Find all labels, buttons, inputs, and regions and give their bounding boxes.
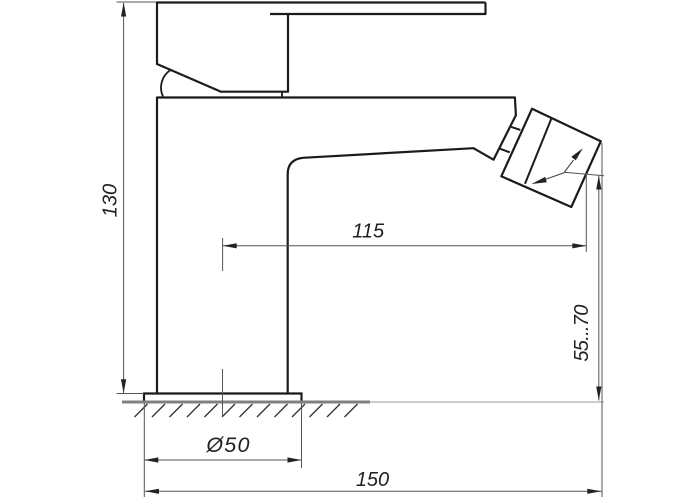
svg-text:150: 150 bbox=[356, 469, 389, 491]
svg-text:115: 115 bbox=[352, 221, 385, 243]
svg-text:130: 130 bbox=[100, 184, 122, 217]
svg-text:55...70: 55...70 bbox=[571, 305, 593, 362]
svg-text:Ø50: Ø50 bbox=[205, 433, 250, 457]
